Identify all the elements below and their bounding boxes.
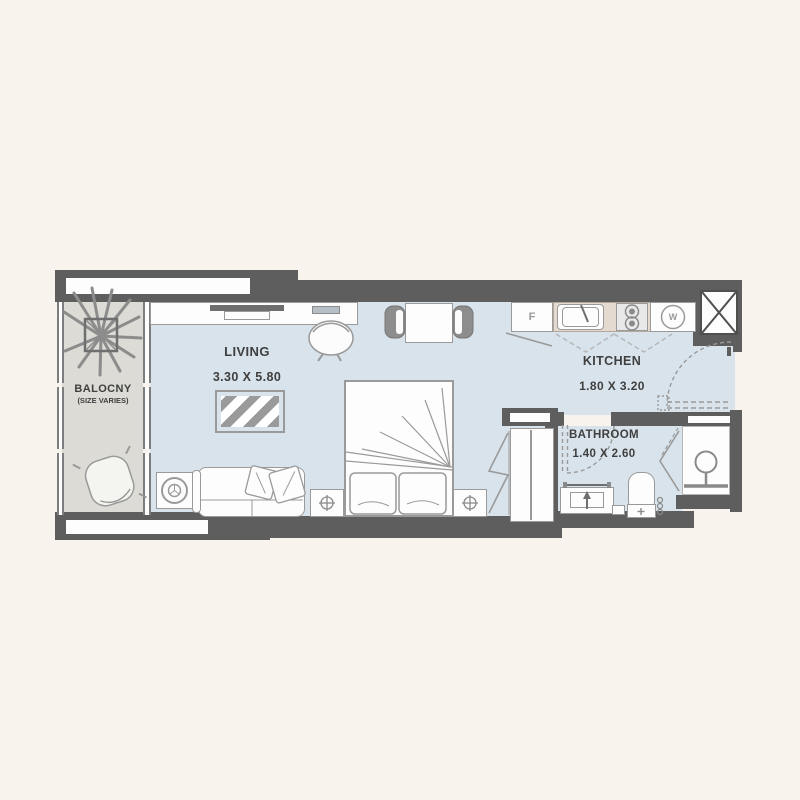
balcony-left-rail [57, 453, 64, 515]
living-room-dims: 3.30 X 5.80 [187, 371, 307, 385]
wardrobe-top-window [510, 413, 550, 422]
fridge-label: F [529, 311, 536, 323]
tv-bracket [224, 311, 270, 320]
balcony-bottom-window [66, 520, 208, 534]
sink-basin [562, 307, 599, 327]
dining-table [405, 303, 453, 343]
bed [344, 380, 454, 517]
stove [616, 303, 648, 331]
kitchen-label: KITCHEN [552, 355, 672, 369]
shaft [700, 290, 738, 335]
bathroom-dims: 1.40 X 2.60 [558, 448, 650, 461]
laptop [312, 306, 340, 314]
nightstand-left [310, 489, 344, 517]
balcony-label: BALOCNY [62, 383, 144, 395]
kitchen-dims: 1.80 X 3.20 [552, 380, 672, 393]
floor-plan: F W [0, 0, 800, 800]
balcony-top-window [66, 278, 250, 294]
balcony-sliding-door [143, 453, 151, 515]
fridge: F [511, 302, 553, 332]
shower-floor [682, 426, 730, 495]
balcony-size-note: (SIZE VARIES) [62, 397, 144, 405]
living-room-label: LIVING [187, 345, 307, 359]
balcony-left-rail [57, 302, 64, 383]
shower-bottom-wall [676, 495, 742, 509]
rug [215, 390, 285, 433]
top-wall [296, 280, 742, 302]
wardrobe [510, 428, 554, 522]
nightstand-right [453, 489, 487, 517]
washer-label: W [663, 310, 683, 324]
waste-bin [612, 505, 625, 515]
sofa [198, 467, 305, 517]
toilet-tank [627, 504, 656, 518]
shower-top-window [688, 416, 730, 423]
wardrobe-divider [530, 430, 532, 520]
toilet-bowl [628, 472, 655, 507]
sofa-armrest [192, 470, 201, 513]
balcony-sliding-door [143, 387, 151, 449]
side-table [156, 472, 193, 509]
balcony-floor [62, 302, 143, 512]
bathroom-label: BATHROOM [558, 429, 650, 442]
vanity-basin [570, 492, 604, 508]
